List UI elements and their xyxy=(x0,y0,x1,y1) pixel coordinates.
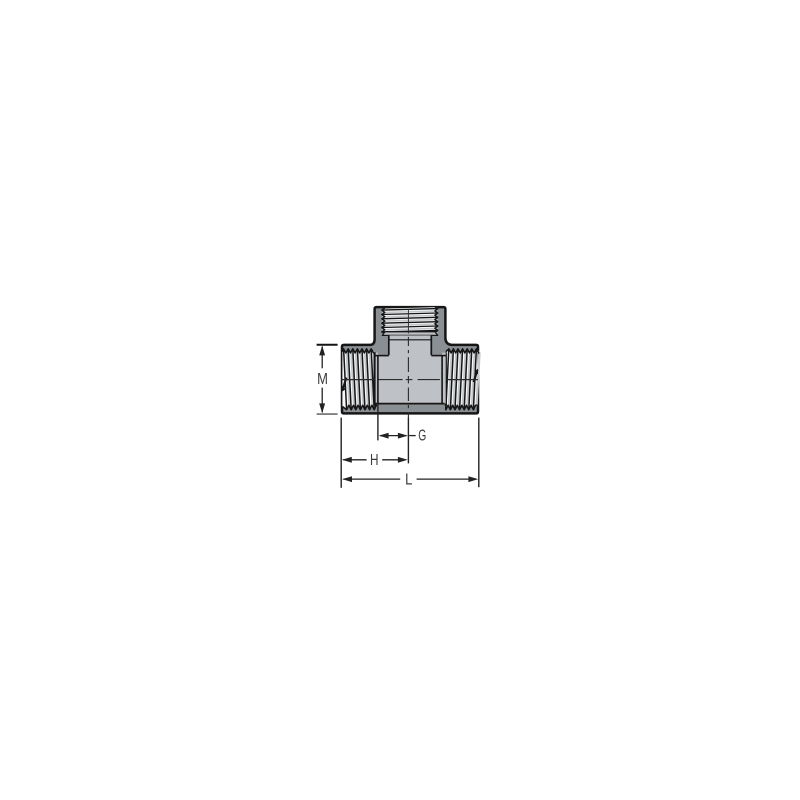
svg-text:M: M xyxy=(317,371,328,388)
svg-text:H: H xyxy=(370,452,379,469)
svg-text:L: L xyxy=(405,472,413,489)
svg-text:G: G xyxy=(418,427,426,444)
